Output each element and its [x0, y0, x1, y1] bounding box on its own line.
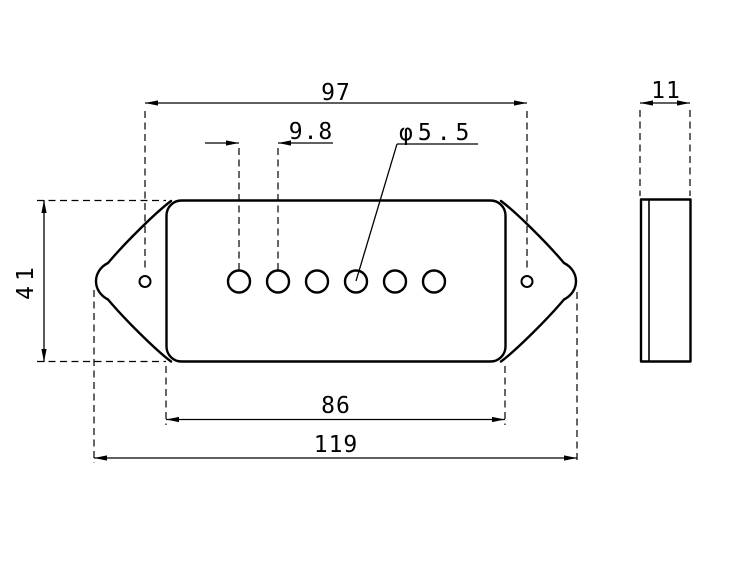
dim-41-arrow-bottom [41, 349, 46, 362]
dim-11-label: 11 [651, 78, 681, 104]
side-view [641, 200, 691, 362]
dim-86: 86 [166, 366, 505, 425]
dim-41-arrow-top [41, 200, 46, 213]
dim-11: 11 [640, 78, 690, 196]
pole-hole-1 [228, 271, 250, 293]
pole-hole-6 [423, 271, 445, 293]
dim-97-arrow-left [145, 100, 158, 105]
dim-97: 97 [145, 80, 527, 272]
dim-119-label: 119 [314, 432, 359, 458]
dim-97-label: 97 [321, 80, 351, 106]
dim-phi-label: φ5.5 [399, 120, 474, 146]
technical-drawing-page: 97 9.8 φ5.5 41 [0, 0, 749, 561]
dim-41-label: 41 [13, 262, 39, 300]
pickup-cover-drawing: 97 9.8 φ5.5 41 [0, 0, 749, 561]
dim-86-arrow-left [166, 417, 179, 422]
front-view [96, 201, 576, 362]
dim-119-arrow-left [94, 455, 107, 460]
dim-86-label: 86 [321, 393, 351, 419]
dim-9-8-arrow-left [226, 140, 239, 145]
dim-119-arrow-right [564, 455, 577, 460]
dim-9-8: 9.8 [205, 119, 333, 272]
left-mounting-hole [140, 276, 151, 287]
pole-hole-4 [345, 271, 367, 293]
dim-86-arrow-right [492, 417, 505, 422]
pole-hole-3 [306, 271, 328, 293]
dim-97-arrow-right [514, 100, 527, 105]
left-ear-outline [96, 201, 171, 362]
pole-hole-5 [384, 271, 406, 293]
front-body-outline [167, 201, 506, 362]
right-ear-outline [501, 201, 576, 362]
right-mounting-hole [522, 276, 533, 287]
dim-phi-leader-line [356, 144, 397, 281]
dim-9-8-label: 9.8 [289, 119, 334, 145]
pole-hole-2 [267, 271, 289, 293]
